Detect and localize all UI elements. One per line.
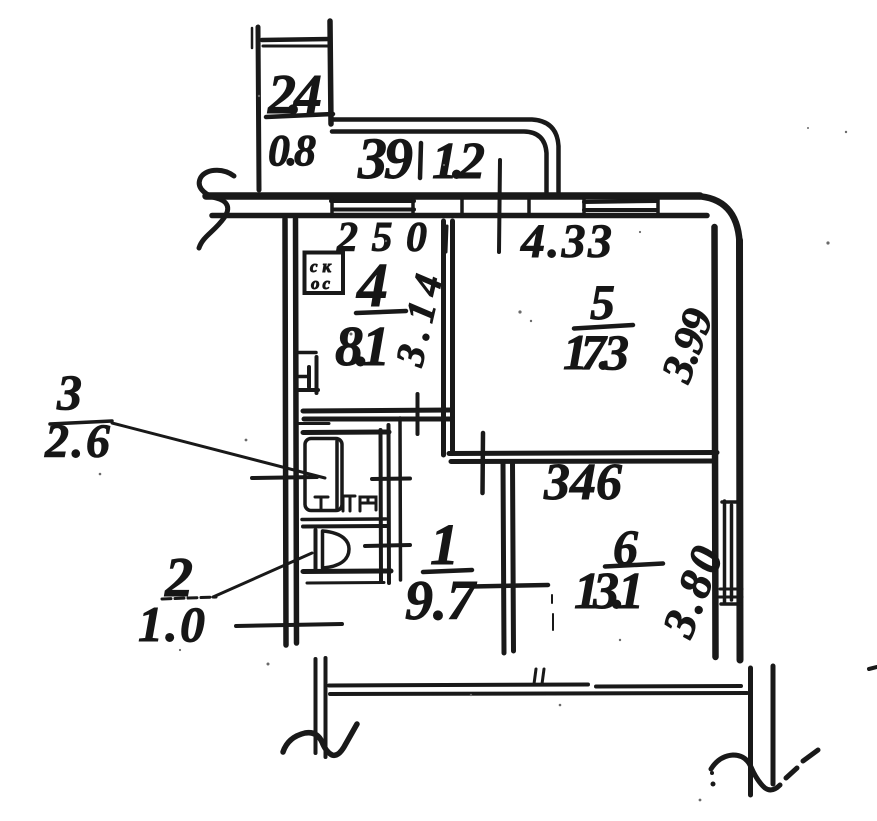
svg-text:8.1: 8.1 <box>335 316 390 378</box>
svg-text:2.6: 2.6 <box>44 415 110 468</box>
svg-text:39: 39 <box>357 126 413 191</box>
svg-text:0.8: 0.8 <box>268 126 316 175</box>
svg-text:1.2: 1.2 <box>432 133 485 190</box>
svg-text:13.1: 13.1 <box>574 563 644 620</box>
svg-text:346: 346 <box>543 454 622 511</box>
svg-text:3: 3 <box>56 364 82 420</box>
svg-text:4.33: 4.33 <box>520 215 612 268</box>
svg-text:5: 5 <box>590 274 615 330</box>
svg-text:1: 1 <box>430 512 459 577</box>
svg-text:9.7: 9.7 <box>405 570 477 632</box>
svg-text:17.3: 17.3 <box>563 324 629 380</box>
svg-text:1.0: 1.0 <box>138 596 205 652</box>
